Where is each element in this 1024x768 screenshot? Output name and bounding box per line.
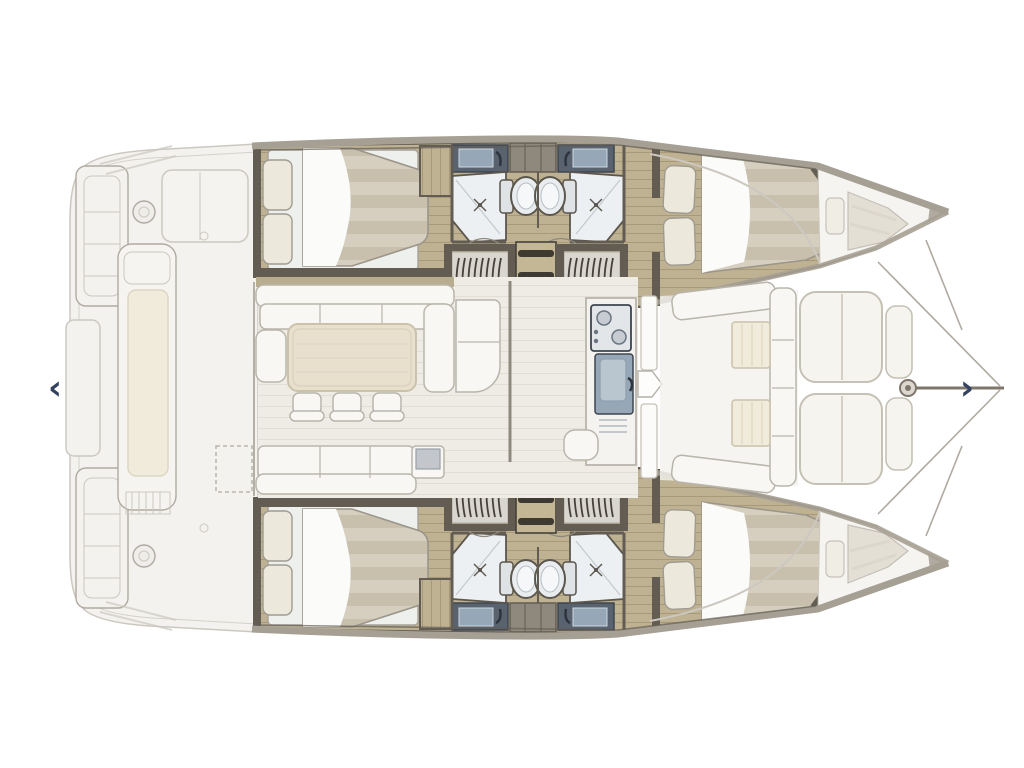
center-locker (510, 143, 556, 172)
foredeck-rigging (878, 240, 1004, 536)
aft-cabin-inner-wall (254, 268, 454, 277)
chaise-lounge (456, 300, 500, 392)
dining-table (288, 324, 416, 391)
catamaran-floorplan-image (0, 0, 1024, 768)
fwd-cockpit-door-arrow (638, 371, 662, 397)
carousel-image-viewport: ‹ › (0, 0, 1024, 768)
galley-stove (591, 305, 631, 351)
sofa-right-arm (424, 304, 454, 392)
fwd-bed-pillow-1 (663, 165, 696, 214)
winch-aft-starboard (133, 201, 155, 223)
saloon (254, 277, 662, 498)
fwd-bench-forward (770, 288, 796, 486)
saloon-fwd-window-bottom (641, 404, 657, 478)
sink-fwd (573, 149, 607, 167)
aft-cabin-headboard-wall (253, 146, 261, 278)
bow-section (818, 166, 948, 265)
nav-seat (564, 430, 598, 460)
sunpads (800, 292, 912, 484)
winch-aft-port (133, 545, 155, 567)
aft-cabin-wardrobe (420, 146, 452, 196)
carousel-prev-button[interactable]: ‹ (38, 369, 72, 407)
saloon-aft-sofa (256, 446, 444, 494)
sofa-end-seat (256, 330, 286, 382)
fwd-bed-pillow-2 (663, 217, 696, 265)
aft-bed-pillow-2 (263, 214, 292, 264)
cockpit-bench (118, 244, 176, 514)
sink-aft (459, 149, 493, 167)
saloon-fwd-window-top (641, 296, 657, 370)
stern-cockpit-ghost (66, 144, 258, 632)
carousel-next-button[interactable]: › (950, 369, 984, 407)
chart-plotter (416, 449, 440, 469)
aft-bed-pillow-1 (263, 160, 292, 210)
